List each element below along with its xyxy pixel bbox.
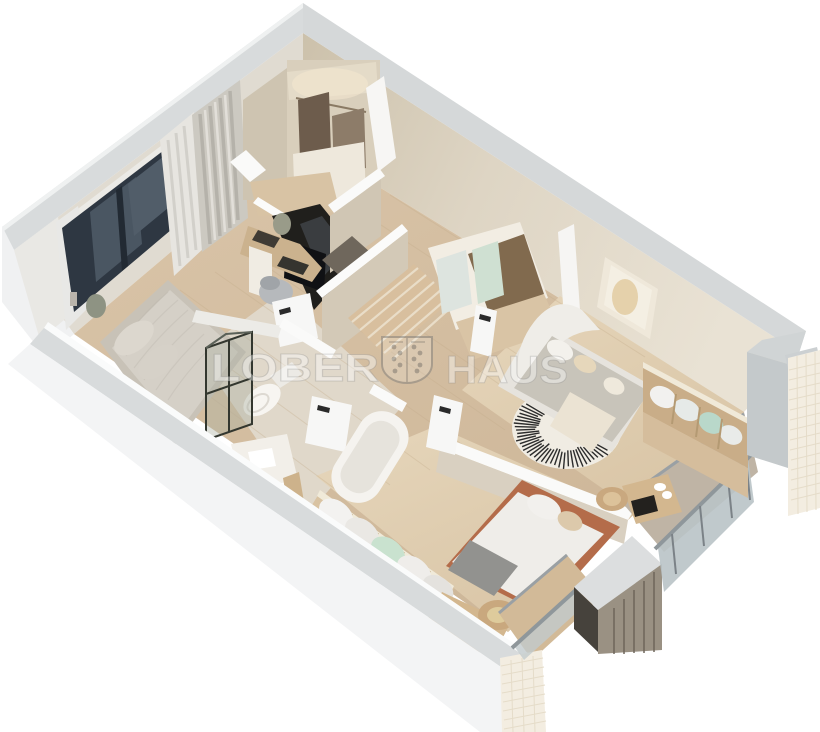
svg-text:LOBER: LOBER [211, 347, 379, 390]
svg-text:HAUS: HAUS [446, 349, 568, 392]
